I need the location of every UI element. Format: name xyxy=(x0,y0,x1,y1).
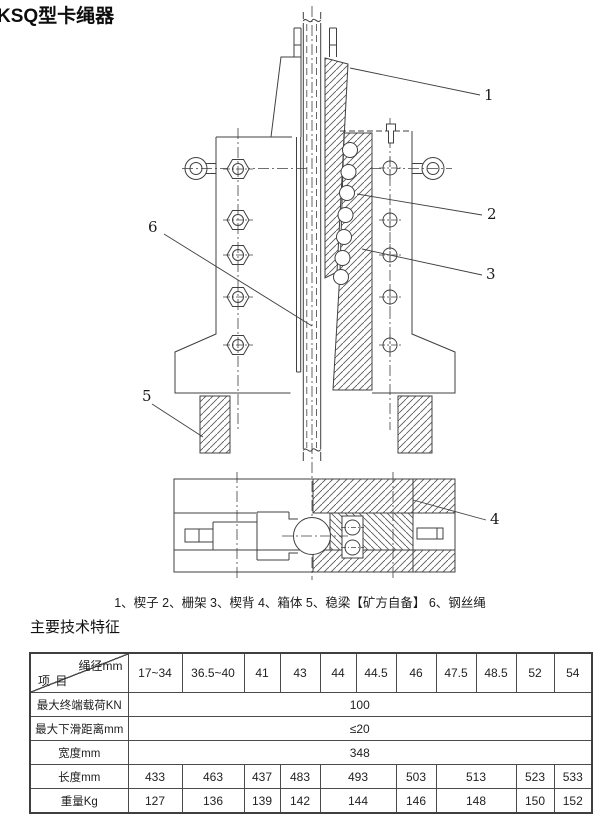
column-header: 36.5~40 xyxy=(182,653,244,693)
callout-label-4: 4 xyxy=(490,510,500,528)
jaw-plates xyxy=(297,137,301,372)
column-header: 44 xyxy=(320,653,356,693)
table-cell: 144 xyxy=(320,789,396,814)
table-cell: 139 xyxy=(244,789,280,814)
left-wedge xyxy=(271,57,301,137)
callout-label-1: 1 xyxy=(484,86,494,104)
column-header: 44.5 xyxy=(356,653,396,693)
top-pins xyxy=(294,28,337,57)
table-cell: 142 xyxy=(280,789,320,814)
table-cell: 146 xyxy=(396,789,436,814)
row-label: 最大下滑距离mm xyxy=(30,717,128,741)
technical-drawing: 1 2 3 4 5 6 xyxy=(0,0,600,588)
column-header: 54 xyxy=(554,653,592,693)
row-label: 宽度mm xyxy=(30,741,128,765)
table-cell: 100 xyxy=(128,693,592,717)
table-header-row: 绳径mm 项 目 17~3436.5~4041434444.54647.548.… xyxy=(30,653,592,693)
table-row: 最大终端载荷KN100 xyxy=(30,693,592,717)
page: KSQ型卡绳器 xyxy=(0,0,600,815)
table-cell: 127 xyxy=(128,789,182,814)
table-body: 最大终端载荷KN100最大下滑距离mm≤20宽度mm348长度mm4334634… xyxy=(30,693,592,814)
figure-caption: 1、楔子 2、栅架 3、楔背 4、箱体 5、稳梁【矿方自备】 6、钢丝绳 xyxy=(0,592,600,611)
column-header: 48.5 xyxy=(476,653,516,693)
table-cell: 493 xyxy=(320,765,396,789)
table-cell: 503 xyxy=(396,765,436,789)
corner-header-cell: 绳径mm 项 目 xyxy=(30,653,128,693)
table-row: 重量Kg127136139142144146148150152 xyxy=(30,789,592,814)
stud-bolt xyxy=(387,124,396,143)
table-row: 长度mm433463437483493503513523533 xyxy=(30,765,592,789)
table-cell: 437 xyxy=(244,765,280,789)
table-cell: 463 xyxy=(182,765,244,789)
column-header: 17~34 xyxy=(128,653,182,693)
column-header: 47.5 xyxy=(436,653,476,693)
table-row: 宽度mm348 xyxy=(30,741,592,765)
row-label: 重量Kg xyxy=(30,789,128,814)
box-body xyxy=(175,131,455,393)
row-label: 最大终端载荷KN xyxy=(30,693,128,717)
table-cell: 348 xyxy=(128,741,592,765)
hex-bolt-column xyxy=(223,128,253,430)
row-label: 长度mm xyxy=(30,765,128,789)
table-cell: 483 xyxy=(280,765,320,789)
table-cell: 148 xyxy=(436,789,516,814)
table-cell: 513 xyxy=(436,765,516,789)
section-title: 主要技术特征 xyxy=(30,616,120,637)
table-cell: 533 xyxy=(554,765,592,789)
hidden-bolt-column xyxy=(379,118,401,430)
column-header: 43 xyxy=(280,653,320,693)
table-cell: 136 xyxy=(182,789,244,814)
column-header: 52 xyxy=(516,653,554,693)
table-cell: 433 xyxy=(128,765,182,789)
table-cell: 523 xyxy=(516,765,554,789)
callout-label-6: 6 xyxy=(148,218,158,236)
spec-table: 绳径mm 项 目 17~3436.5~4041434444.54647.548.… xyxy=(29,652,593,814)
corner-label-item: 项 目 xyxy=(38,672,68,689)
table-cell: 152 xyxy=(554,789,592,814)
support-beam-right xyxy=(398,396,432,453)
column-header: 41 xyxy=(244,653,280,693)
callout-label-2: 2 xyxy=(487,205,497,223)
callout-label-5: 5 xyxy=(142,387,152,405)
column-header: 46 xyxy=(396,653,436,693)
table-cell: 150 xyxy=(516,789,554,814)
corner-label-rope-diameter: 绳径mm xyxy=(79,657,123,674)
table-row: 最大下滑距离mm≤20 xyxy=(30,717,592,741)
callout-label-3: 3 xyxy=(486,265,496,283)
table-cell: ≤20 xyxy=(128,717,592,741)
support-beam-left xyxy=(200,396,230,453)
